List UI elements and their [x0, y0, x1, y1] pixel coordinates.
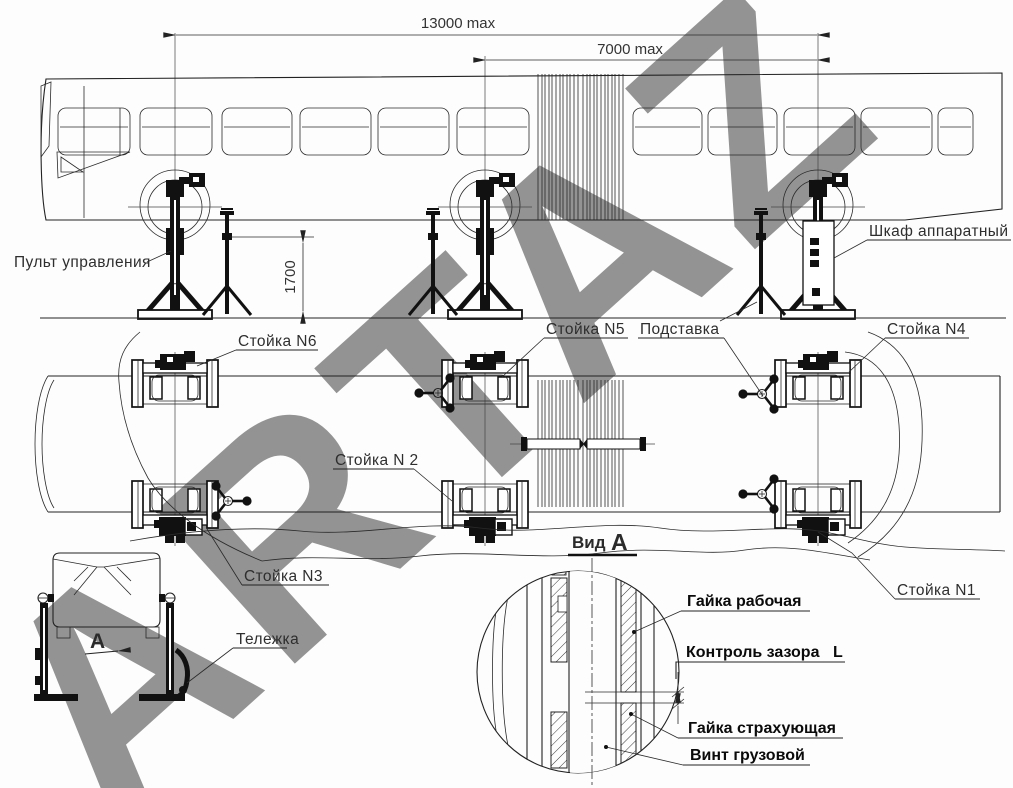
- handwheel-icon: [738, 474, 778, 513]
- dimension-rear-section-value: 7000 max: [597, 41, 663, 58]
- svg-text:Пульт управления: Пульт управления: [14, 254, 151, 271]
- view-a-letter: А: [611, 529, 628, 555]
- bus-lift-drawing: ARTAZ 13000 max 7000 max: [0, 0, 1013, 788]
- working-nut-left-section: [551, 578, 567, 662]
- technical-drawing-page: ARTAZ 13000 max 7000 max: [0, 0, 1013, 788]
- front-door-wedge: [57, 152, 130, 178]
- detail-view-a: Гайка рабочая Контроль зазора L Гайка ст…: [477, 558, 845, 786]
- handwheel-icon: [738, 374, 778, 413]
- control-panel-label: Пульт управления: [14, 251, 171, 271]
- svg-text:Стойка N6: Стойка N6: [238, 333, 317, 350]
- view-a-title: Вид А: [568, 529, 637, 555]
- direction-letter: А: [90, 630, 105, 653]
- equipment-cabinet: [803, 221, 834, 305]
- support-stand-front: [203, 209, 251, 315]
- svg-text:Гайка рабочая: Гайка рабочая: [687, 593, 801, 610]
- safety-nut-right-section: [621, 703, 636, 763]
- svg-text:Стойка N4: Стойка N4: [887, 321, 966, 338]
- windshield: [41, 82, 51, 157]
- safety-nut-label: Гайка страхующая: [629, 712, 843, 738]
- svg-text:Стойка N 2: Стойка N 2: [335, 452, 419, 469]
- svg-text:Стойка N5: Стойка N5: [546, 321, 625, 338]
- working-nut-label: Гайка рабочая: [632, 593, 810, 634]
- gap-dimension-arrows: [672, 672, 684, 724]
- dimension-overall-value: 13000 max: [421, 15, 496, 32]
- svg-text:Тележка: Тележка: [236, 631, 299, 648]
- view-a-word: Вид: [572, 533, 606, 552]
- svg-text:Шкаф аппаратный: Шкаф аппаратный: [869, 223, 1008, 240]
- stand-n1-label: Стойка N1: [818, 532, 980, 599]
- svg-text:Гайка страхующая: Гайка страхующая: [688, 720, 836, 737]
- svg-text:Стойка N3: Стойка N3: [244, 568, 323, 585]
- lift-column-front: [138, 173, 212, 319]
- stand-n4-label: Стойка N4: [849, 321, 969, 372]
- safety-nut-left-section: [551, 712, 567, 768]
- gap-letter: L: [833, 644, 843, 661]
- svg-text:Подставка: Подставка: [640, 321, 719, 338]
- svg-text:Стойка N1: Стойка N1: [897, 582, 976, 599]
- working-nut-right-section: [621, 578, 636, 692]
- dimension-lift-height-value: 1700: [282, 260, 299, 293]
- svg-text:Винт грузовой: Винт грузовой: [690, 747, 805, 764]
- svg-text:Контроль зазора: Контроль зазора: [686, 644, 820, 661]
- gap-control-label: Контроль зазора L: [676, 644, 845, 679]
